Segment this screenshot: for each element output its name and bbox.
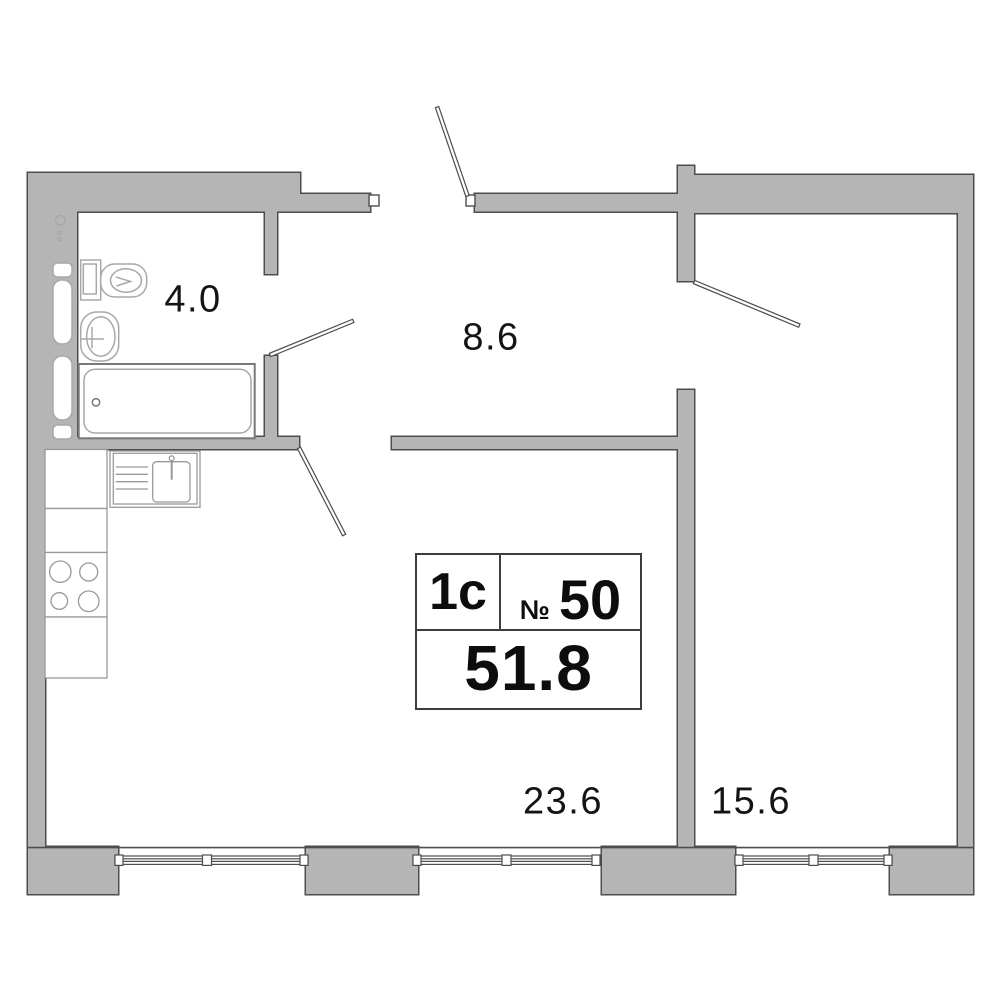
toilet (81, 260, 147, 300)
bedroom-door-leaf (693, 280, 800, 327)
kitchen-counter (45, 450, 107, 679)
window-living-room-left (115, 855, 308, 865)
entry-door-leaf (435, 107, 469, 197)
bathroom-fixtures (53, 216, 255, 440)
windows (115, 855, 892, 865)
doors (269, 107, 800, 536)
bathroom-sink (81, 312, 119, 361)
room-area-label-hallway: 8.6 (462, 317, 519, 360)
room-area-label-kitchen-living: 23.6 (523, 781, 603, 824)
unit-total-area: 51.8 (417, 631, 640, 708)
bathroom-door-leaf (269, 319, 354, 356)
numero-sign: № (520, 597, 550, 624)
window-bedroom (735, 855, 892, 865)
kitchen-fixtures (45, 450, 200, 679)
entry-door-jambs (369, 195, 475, 206)
walls (28, 166, 973, 894)
unit-info-box: 1с № 50 51.8 (415, 553, 642, 710)
window-living-room-right (413, 855, 600, 865)
unit-number-cell: № 50 (501, 555, 640, 629)
kitchen-sink (110, 451, 200, 507)
kitchen-door-leaf (297, 447, 345, 536)
unit-info-top-row: 1с № 50 (417, 555, 640, 631)
bathtub (79, 364, 255, 438)
floor-plan-page: 4.0 8.6 23.6 15.6 1с № 50 51.8 (0, 0, 1000, 1000)
unit-number: 50 (559, 572, 621, 628)
room-area-label-bedroom: 15.6 (711, 781, 791, 824)
floor-plan-drawing (0, 0, 1000, 1000)
room-area-label-bathroom: 4.0 (164, 279, 221, 322)
unit-type-label: 1с (417, 555, 501, 629)
